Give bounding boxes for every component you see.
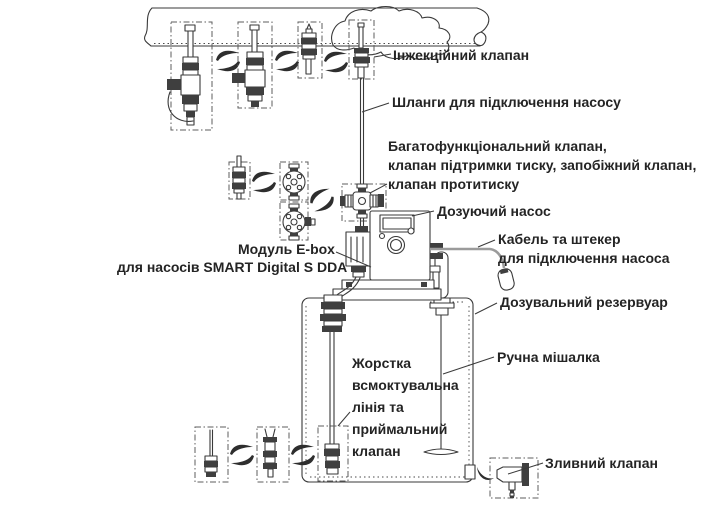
label-tank: Дозувальний резервуар bbox=[500, 293, 668, 312]
swap-arrows-icon bbox=[307, 186, 337, 213]
valve-variant-inline bbox=[229, 156, 250, 199]
swap-arrows-icon bbox=[291, 445, 315, 465]
drain-valve bbox=[465, 458, 538, 498]
label-injection-valve: Інжекційний клапан bbox=[393, 46, 529, 65]
suction-lance-fitting bbox=[320, 295, 346, 332]
injection-valve-variant-2 bbox=[232, 22, 272, 108]
label-suction-line: Жорстка всмоктувальна лінія та приймальн… bbox=[352, 352, 459, 462]
pump-connection-hose bbox=[361, 78, 364, 184]
valve-to-pump-hose bbox=[361, 218, 364, 227]
injection-valve-variant-1 bbox=[167, 22, 212, 130]
drain-arrow-icon bbox=[477, 467, 494, 480]
power-plug bbox=[497, 268, 516, 292]
pump-base-plate bbox=[333, 289, 441, 300]
tank-drain-fitting bbox=[465, 465, 475, 479]
foot-valve-variant-1 bbox=[195, 427, 228, 482]
label-cable-plug: Кабель та штекер для підключення насоса bbox=[498, 230, 670, 268]
label-ebox-line2: для насосів SMART Digital S DDA bbox=[117, 258, 347, 277]
label-multifunction-valve: Багатофункціональний клапан, клапан підт… bbox=[388, 137, 696, 194]
valve-variant-round bbox=[280, 162, 308, 200]
swap-arrows-icon bbox=[230, 445, 254, 465]
valve-variant-round-side-port bbox=[280, 202, 315, 240]
label-ebox-line1: Модуль E-box bbox=[238, 240, 335, 259]
foot-valve-in-tank bbox=[318, 426, 348, 481]
foot-valve-variant-2 bbox=[257, 427, 289, 482]
label-hoses: Шланги для підключення насосу bbox=[392, 93, 621, 112]
injection-valve-variant-3 bbox=[298, 22, 322, 78]
swap-arrows-icon bbox=[252, 172, 276, 192]
swap-arrows-icon bbox=[216, 51, 240, 71]
label-mixer: Ручна мішалка bbox=[497, 348, 600, 367]
suction-lance-tube bbox=[330, 332, 334, 445]
label-dosing-pump: Дозуючий насос bbox=[437, 202, 551, 221]
diagram-canvas: Інжекційний клапан Шланги для підключенн… bbox=[0, 0, 704, 528]
swap-arrows-icon bbox=[275, 51, 299, 71]
pump-connector-stub bbox=[430, 253, 443, 259]
injection-valve bbox=[349, 20, 374, 79]
label-drain-valve: Зливний клапан bbox=[545, 454, 658, 473]
swap-arrows-icon bbox=[324, 52, 348, 72]
